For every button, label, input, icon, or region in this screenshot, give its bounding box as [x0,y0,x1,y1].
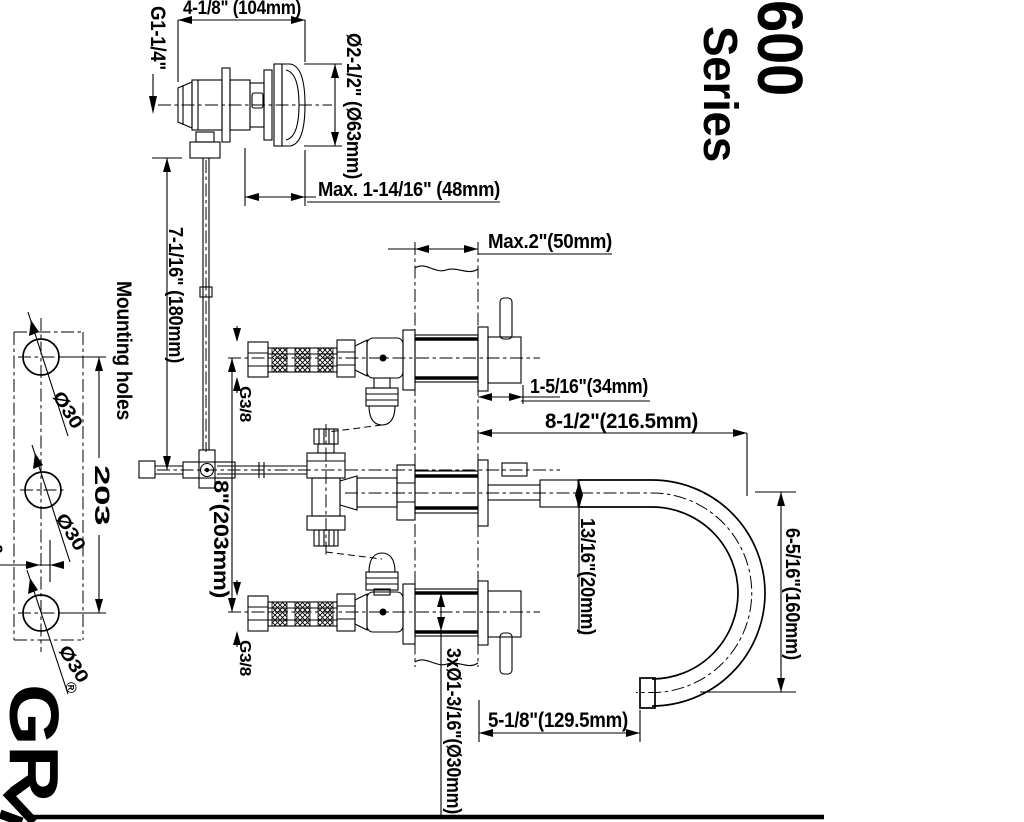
dim-hole-offset-partial: 6 [0,544,6,553]
hose-nut [248,342,268,377]
series-number: 600 [744,0,816,96]
dim-hole-dia-top: Ø30 [49,388,87,433]
dim-spout-height: 6-5/16"(160mm) [781,528,803,660]
brand-logo: GR [0,684,73,802]
dim-max-mount-top: Max. 1-14/16" (48mm) [318,179,500,201]
top-valve-assembly [228,298,540,432]
lift-rod-left-knob [139,461,155,478]
hose-nut-bottom [248,596,268,631]
dim-supply-thread-bottom: G3/8 [236,640,253,676]
handle-body [488,337,521,383]
dim-mounting-hole-spec: 3xØ1-3/16"(Ø30mm) [442,648,464,814]
wall-section [415,242,478,667]
faucet-installation-diagram: G1-1/4" 4-1/8" (104mm) Ø2-1/2" (Ø63mm) M… [0,0,1024,822]
spout-curve [345,480,765,708]
dim-handle-projection: 1-5/16"(34mm) [530,376,648,398]
technical-drawing-sheet: G1-1/4" 4-1/8" (104mm) Ø2-1/2" (Ø63mm) M… [0,0,1024,822]
wall-break-line-top [415,266,478,272]
label-mounting-holes: Mounting holes [112,281,135,420]
dim-hole-spacing: 203 [90,465,113,525]
dim-outlet-distance: 5-1/8"(129.5mm) [488,709,628,732]
dimensions: G1-1/4" 4-1/8" (104mm) Ø2-1/2" (Ø63mm) M… [0,0,803,815]
dim-supply-thread-top: G3/8 [236,386,253,422]
series-word: Series [693,26,746,162]
dim-inlet-thread: G1-1/4" [146,6,169,70]
dim-spout-reach: 8-1/2"(216.5mm) [545,410,698,433]
mixing-tee [307,424,345,556]
dim-max-wall: Max.2"(50mm) [488,231,612,253]
handle-lever-down [500,633,512,674]
dim-valve-diameter: Ø2-1/2" (Ø63mm) [342,33,364,179]
bottom-valve-assembly [228,553,540,674]
handle-body-bottom [488,591,521,637]
dim-valve-centers: 8"(203mm) [209,480,232,598]
registered-mark: ® [62,682,79,693]
handle-lever-up [500,298,512,339]
knurled-nut [190,142,220,158]
dim-hole-dia-bottom: Ø30 [55,642,93,687]
escutcheon-flange [403,330,415,390]
dim-valve-length: 4-1/8" (104mm) [183,0,301,19]
dim-hole-dia-middle: Ø30 [52,510,90,555]
